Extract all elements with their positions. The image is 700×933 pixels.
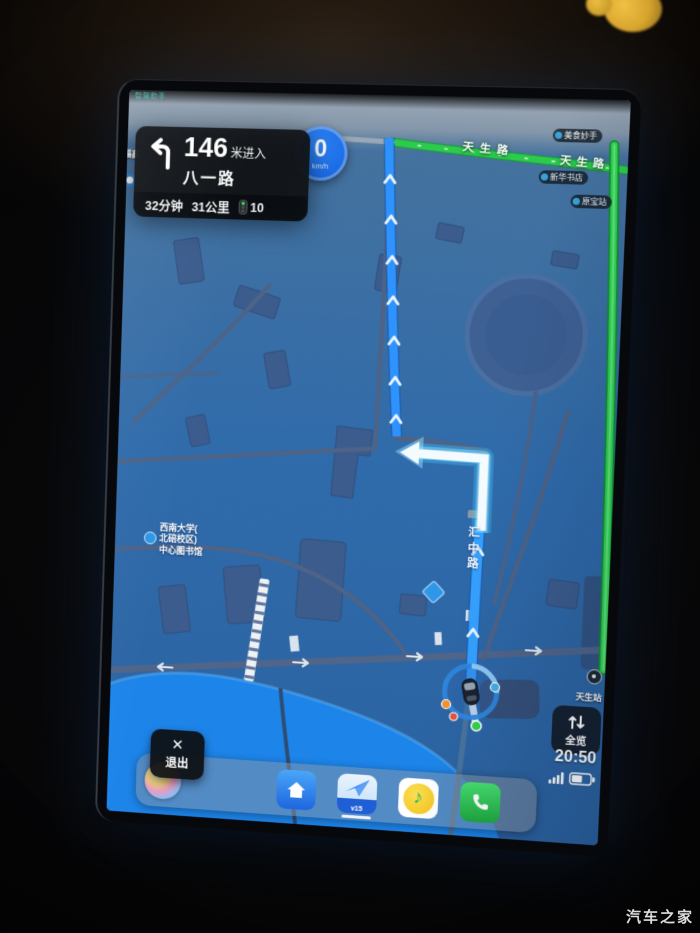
car-display-tablet: 智驾助手 天生路 天生路 汇中路 美食妙手 新华书店 原宝站 西南大学(	[95, 79, 642, 858]
music-circle-icon: ♪	[402, 782, 434, 815]
overview-label: 全览	[565, 733, 587, 749]
car-interior-photo: 智驾助手 天生路 天生路 汇中路 美食妙手 新华书店 原宝站 西南大学(	[0, 0, 700, 933]
battery-icon	[569, 772, 596, 787]
navigation-banner[interactable]: 146 米进入 八一路 32分钟 31公里	[133, 126, 310, 222]
library-poi-icon	[144, 532, 157, 545]
duck-toy	[604, 0, 662, 32]
eta-distance: 31公里	[191, 196, 230, 216]
poi-library[interactable]: 西南大学( 北碚校区) 中心图书馆	[143, 521, 203, 557]
clock: 20:50	[554, 748, 596, 769]
overview-arrows-icon	[566, 712, 587, 733]
home-app-icon[interactable]	[276, 769, 316, 811]
navigation-screen: 智驾助手 天生路 天生路 汇中路 美食妙手 新华书店 原宝站 西南大学(	[107, 90, 631, 846]
distance-value: 146	[183, 134, 228, 162]
traffic-light-count: 10	[250, 200, 264, 214]
library-line-3: 中心图书馆	[159, 544, 203, 557]
exit-navigation-button[interactable]: ✕ 退出	[150, 728, 205, 780]
eta-time: 32分钟	[145, 195, 183, 215]
speed-value: 0	[314, 137, 328, 161]
distance-suffix: 米进入	[230, 144, 266, 162]
active-app-indicator	[341, 815, 371, 820]
poi-pill-3-label: 原宝站	[582, 196, 607, 208]
speed-unit: km/h	[312, 161, 328, 170]
poi-pill-2[interactable]: 新华书店	[539, 170, 589, 185]
poi-dot-icon	[555, 132, 562, 139]
paper-plane-icon	[337, 773, 377, 801]
music-app-icon[interactable]: ♪	[398, 777, 439, 819]
house-icon	[284, 777, 308, 802]
signal-bars-icon	[548, 770, 565, 784]
turn-left-icon	[144, 137, 176, 172]
top-status-text: 智驾助手	[135, 91, 166, 102]
watermark: 汽车之家	[626, 906, 694, 927]
phone-handset-icon	[468, 790, 493, 815]
banner-main: 146 米进入 八一路	[134, 126, 311, 196]
music-note-icon: ♪	[413, 788, 423, 807]
poi-dot-icon	[541, 173, 548, 180]
eta-bar: 32分钟 31公里 10	[133, 192, 308, 222]
navigation-app-icon[interactable]: v15	[337, 773, 378, 815]
poi-pill-1-label: 美食妙手	[564, 130, 597, 142]
road-label-huizhonglu: 汇中路	[463, 526, 481, 573]
exit-label: 退出	[165, 754, 189, 772]
phone-app-icon[interactable]	[459, 781, 501, 823]
poi-pill-2-label: 新华书店	[550, 171, 583, 183]
poi-pill-3[interactable]: 原宝站	[570, 195, 612, 209]
traffic-light-icon	[238, 200, 247, 215]
map-park-circle	[465, 274, 588, 396]
poi-pill-1[interactable]: 美食妙手	[553, 128, 603, 142]
navigation-app-badge: v15	[337, 804, 377, 814]
close-icon: ✕	[171, 738, 184, 753]
poi-dot-icon	[573, 198, 581, 205]
station-poi-label: 天生站	[575, 690, 602, 704]
next-road-name: 八一路	[183, 164, 266, 190]
